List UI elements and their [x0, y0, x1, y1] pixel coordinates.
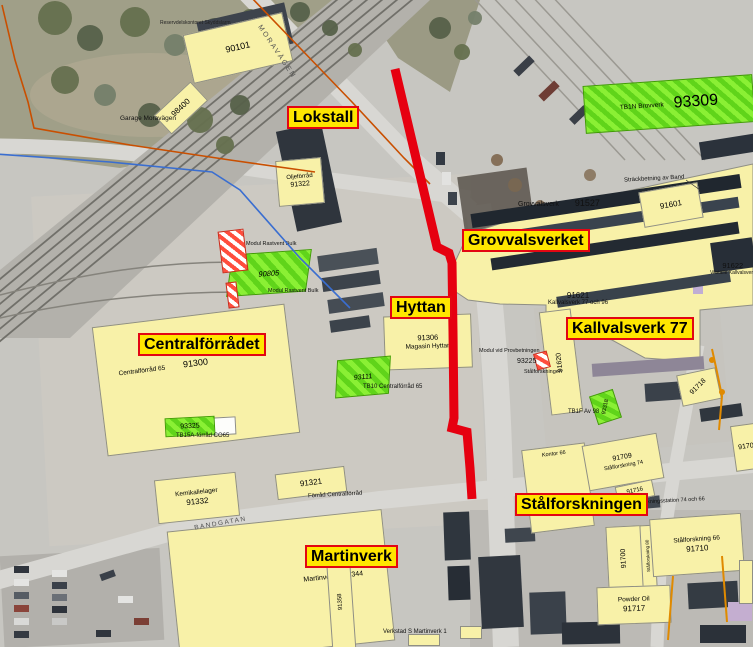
- building-name: Kallvalsverk 77 och 96: [548, 300, 608, 306]
- building-label: 91300: [182, 356, 208, 370]
- annotation-stalforskningen-liten: Stålforskningen: [524, 369, 562, 375]
- building-label: 91527: [575, 198, 600, 208]
- highlight-label-kallvalsverk-77: Kallvalsverk 77: [566, 317, 694, 340]
- building-91306-magasin-hyttan: 91306 Magasin Hyttan: [383, 313, 473, 370]
- building-small-a: [408, 634, 440, 646]
- label-grovvalsverk-91527: Grovvalsverk 91527: [518, 198, 600, 208]
- building-label: 90101: [225, 40, 252, 57]
- building-label: 91332: [186, 496, 209, 508]
- highlight-label-hyttan: Hyttan: [390, 296, 452, 319]
- building-label: 91706: [738, 441, 753, 452]
- highlight-label-martinverk: Martinverk: [305, 545, 398, 568]
- building-91332-kemikalielager: Kemikalielager 91332: [154, 472, 240, 524]
- highlight-label-centralforradet: Centralförrådet: [138, 333, 266, 356]
- annotation-modul-provbetningen: Modul vid Provbetningen: [479, 348, 540, 354]
- annotation-tb15a: TB15A-förråd CO65: [176, 433, 229, 439]
- building-name: Magasin Hyttan: [405, 342, 450, 352]
- green-area-label: 93309: [673, 92, 719, 113]
- building-91700: 91700: [605, 525, 644, 591]
- highlight-label-stalforskningen: Stålforskningen: [515, 493, 648, 516]
- label-91622-vitstalle: 91622 Vitställe Kallvalsverk: [710, 261, 753, 276]
- building-label: 91718: [689, 377, 709, 397]
- building-label: 91717: [623, 604, 646, 615]
- annotation-garage-moravagen: Garage Moravägen: [120, 115, 176, 122]
- building-91717-powder-oil: Powder Oil 91717: [596, 585, 671, 626]
- green-area-name: TB1N Brovverk: [620, 101, 664, 111]
- building-label: 91710: [686, 543, 709, 555]
- building-name: Vitställe Kallvalsverk: [710, 270, 753, 276]
- green-area-label: 93325: [180, 422, 200, 430]
- green-area-label: 93318: [601, 399, 610, 415]
- annotation-verkstad-martinverk: Verkstad S Martinverk 1: [383, 629, 447, 635]
- building-name: Kontor 66: [542, 450, 567, 460]
- highlight-label-lokstall: Lokstall: [287, 106, 359, 129]
- building-label: 91601: [659, 198, 683, 212]
- building-label: 91358: [337, 593, 346, 610]
- building-label: 91622: [710, 261, 753, 270]
- annotation-93225: 93225: [517, 358, 536, 365]
- annotation-reservdelskontoret: Reservdelskontoret Skyddslarm: [160, 20, 231, 26]
- green-area-93111: 93111: [335, 355, 391, 398]
- building-91322-oljeforrad: Oljeförråd 91322: [275, 157, 325, 207]
- annotation-modul-bulk-a: Modul Rastvent Bulk: [246, 241, 296, 247]
- building-small-c: [739, 560, 753, 604]
- building-small-b: [460, 626, 482, 639]
- hatched-module-a: [218, 229, 249, 274]
- map-canvas: 90101 98400 Oljeförråd 91322 Centralförr…: [0, 0, 753, 647]
- building-label: 91322: [290, 181, 310, 191]
- annotation-modul-bulk-b: Modul Rastvent Bulk: [268, 288, 318, 294]
- building-label: 91621: [548, 291, 608, 300]
- highlight-label-grovvalsverket: Grovvalsverket: [462, 229, 590, 252]
- building-name: Grovvalsverk: [518, 201, 559, 208]
- annotation-tb1f: TB1F Av 98: [568, 409, 599, 415]
- label-91621-kallvalsverk: 91621 Kallvalsverk 77 och 96: [548, 291, 608, 306]
- annotation-tb10: TB10 Centralförråd 65: [363, 384, 422, 390]
- building-label: 91700: [620, 548, 630, 568]
- green-area-label: 90805: [258, 268, 280, 279]
- building-label: 91321: [299, 477, 322, 490]
- green-area-label: 93111: [354, 373, 373, 382]
- building-91710-stalforskning-66: Stålforskning 66 91710: [649, 513, 745, 577]
- building-name: Centralförråd 65: [118, 365, 166, 379]
